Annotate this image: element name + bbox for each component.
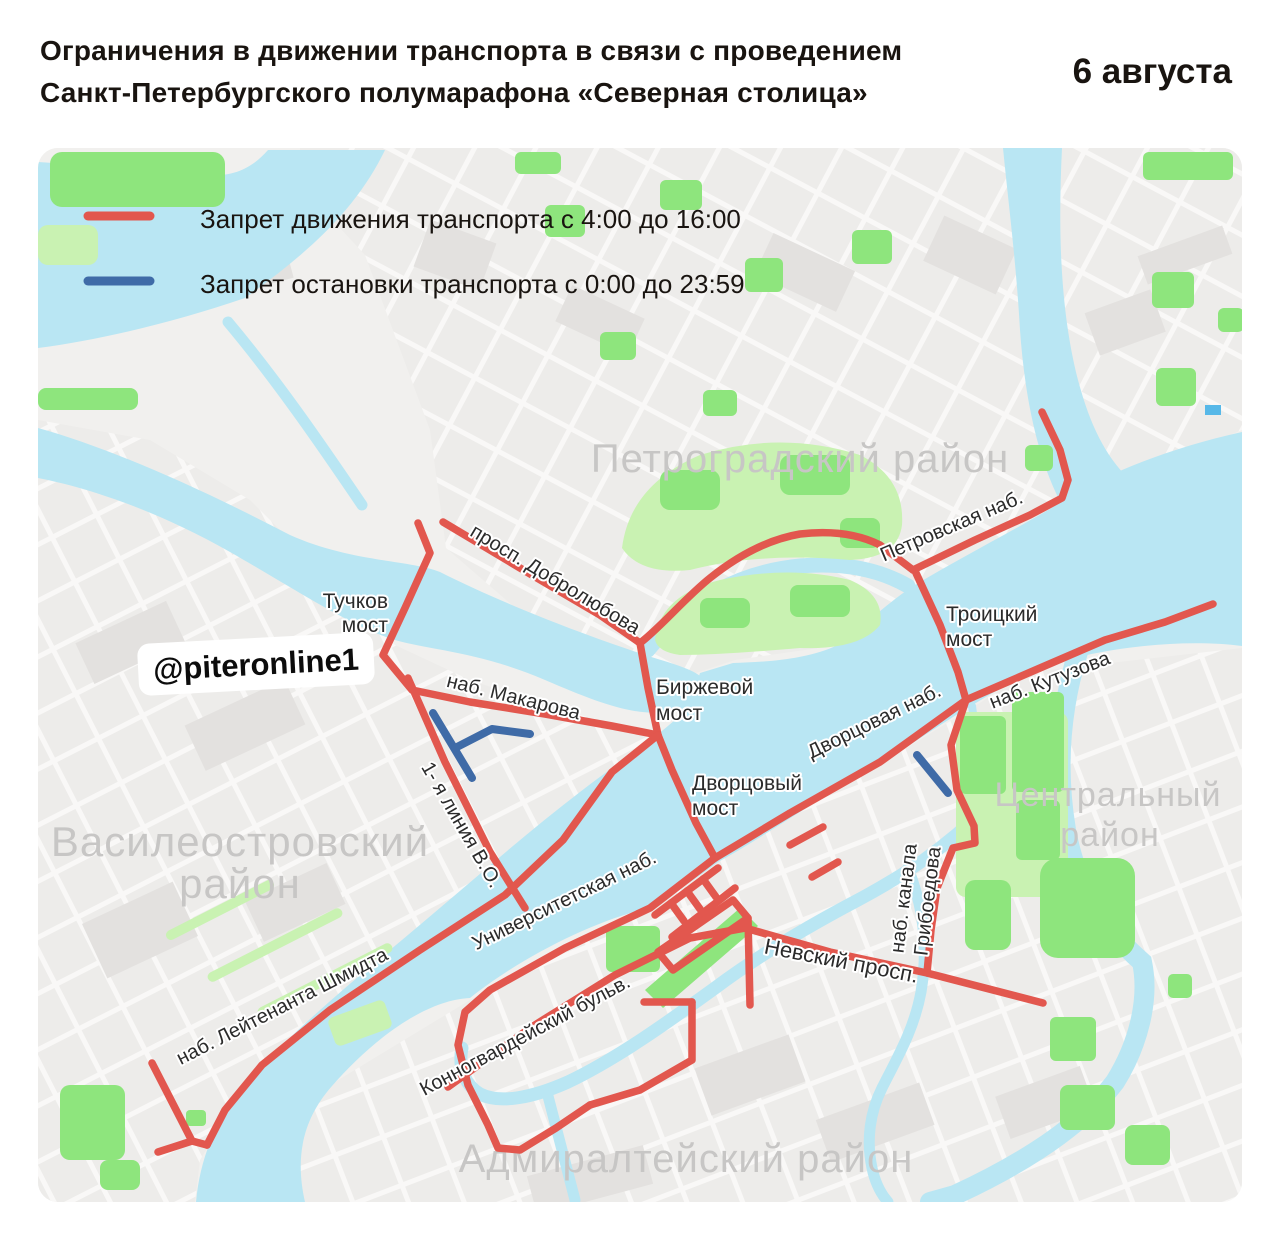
map-canvas: Петроградский район Василеостровский рай… <box>38 148 1242 1202</box>
district-central-line2: район <box>1060 816 1160 854</box>
label-troitsky-2: мост <box>946 628 993 651</box>
label-dvortsovy-1: Дворцовый <box>692 772 802 795</box>
label-tuchkov-1: Тучков <box>323 590 388 613</box>
map-title-line1: Ограничения в движении транспорта в связ… <box>40 30 1240 72</box>
city-map: Петроградский район Василеостровский рай… <box>38 148 1242 1202</box>
legend-no-driving-label: Запрет движения транспорта с 4:00 до 16:… <box>200 204 741 234</box>
district-petrogradsky: Петроградский район <box>591 437 1009 481</box>
map-title-line2: Санкт-Петербургского полумарафона «Север… <box>40 72 1240 114</box>
label-troitsky-1: Троицкий <box>946 603 1037 626</box>
label-birzhevoy-2: мост <box>656 702 703 725</box>
label-birzhevoy-1: Биржевой <box>656 676 753 699</box>
district-central-line1: Центральный <box>995 776 1222 814</box>
page-header: Ограничения в движении транспорта в связ… <box>40 30 1240 114</box>
district-vasileostrovsky-line1: Василеостровский <box>51 818 429 865</box>
legend-no-stopping-label: Запрет остановки транспорта с 0:00 до 23… <box>200 269 745 299</box>
event-date: 6 августа <box>1073 52 1232 92</box>
label-dvortsovy-2: мост <box>692 797 739 820</box>
district-vasileostrovsky-line2: район <box>179 860 301 907</box>
